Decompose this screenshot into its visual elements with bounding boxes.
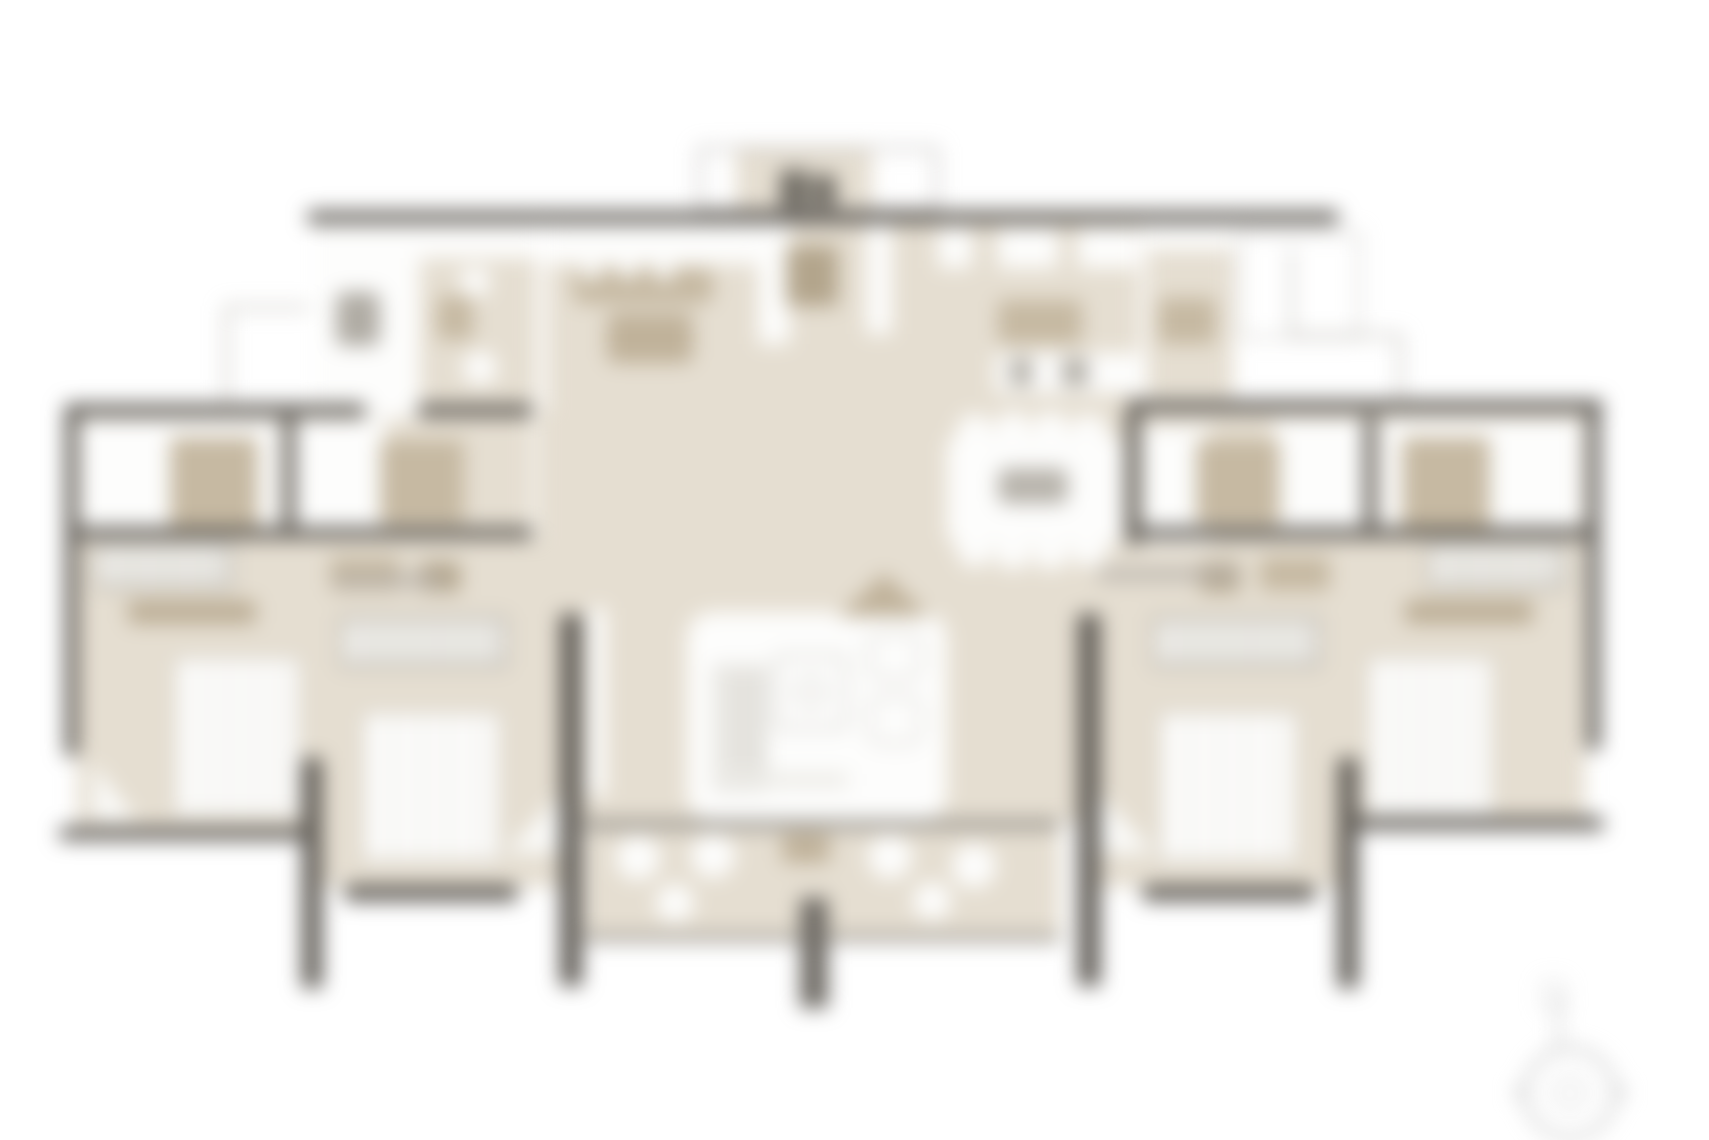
- closet-far-left-stripe: [176, 550, 179, 588]
- vestibule-cabinet: [786, 246, 838, 306]
- closet-inner-right-stripe: [1302, 624, 1305, 666]
- blurred-floor-plan: [0, 0, 1709, 1140]
- wall-inner-left-sep: [302, 758, 322, 988]
- bed-far-right-stripe: [1445, 663, 1448, 815]
- kitchen-window-1: [938, 228, 972, 268]
- north-compass-hub-icon: [1553, 1076, 1587, 1110]
- dining-chair-4: [1071, 414, 1107, 450]
- floor-plan-screenshot: [0, 0, 1709, 1140]
- closet-inner-right-stripe: [1219, 624, 1222, 666]
- sofa-chaise: [716, 772, 850, 788]
- wc-toilet: [463, 351, 497, 385]
- wall-left-mid: [77, 527, 532, 539]
- closet-far-left-stripe: [118, 550, 121, 588]
- closet-far-left-stripe: [157, 550, 160, 588]
- sofa-chaise-stripe: [820, 776, 823, 784]
- sofa-chaise-stripe: [731, 776, 734, 784]
- wall-top-main: [308, 211, 1338, 224]
- closet-far-right-stripe: [1490, 550, 1493, 588]
- north-compass-flag-icon: [1542, 981, 1564, 1009]
- counter-dot-2: [619, 261, 637, 279]
- bed-far-left-stripe: [202, 663, 205, 815]
- closet-far-right-stripe: [1548, 550, 1551, 588]
- bed-far-right-stripe: [1470, 663, 1473, 815]
- right-room-b: [1274, 420, 1364, 534]
- wall-left-wing-top-b: [418, 404, 532, 417]
- wall-inner-right-bottom: [1143, 885, 1315, 901]
- wc-cabinet: [437, 296, 473, 340]
- closet-far-right-stripe: [1470, 550, 1473, 588]
- closet-inner-left-stripe: [385, 624, 388, 666]
- wall-far-right-bottom: [1355, 817, 1603, 830]
- sofa-stripe: [742, 672, 745, 788]
- corridor-gap-right: [866, 334, 892, 412]
- counter-dot-1: [583, 263, 601, 281]
- bed-inner-left-stripe: [392, 718, 395, 860]
- dining-chair-5: [957, 531, 993, 567]
- terrace-table: [782, 833, 830, 863]
- wardrobe-left-a: [170, 437, 258, 529]
- bed-inner-left-stripe: [420, 718, 423, 860]
- terrace-seat-2: [691, 834, 735, 878]
- wall-dining-vert: [1126, 410, 1140, 544]
- closet-far-left-stripe: [215, 550, 218, 588]
- bed-far-left: [175, 657, 300, 817]
- closet-inner-right-stripe: [1281, 624, 1284, 666]
- wall-terrace-right: [1078, 614, 1100, 986]
- corridor-gap-left: [758, 344, 790, 410]
- wall-right-divider: [1364, 417, 1376, 531]
- sofa-chaise-stripe: [805, 776, 808, 784]
- closet-inner-right-stripe: [1240, 624, 1243, 666]
- wardrobe-right-b: [1196, 440, 1280, 524]
- bed-inner-right-stripe: [1217, 718, 1220, 860]
- kitchen-counter-mark-1: [1010, 358, 1032, 386]
- bed-far-right-stripe: [1420, 663, 1423, 815]
- bed-far-left-stripe: [252, 663, 255, 815]
- wall-gap-left-wing: [365, 404, 418, 418]
- terrace-pillar: [800, 898, 828, 1008]
- terrace-seat-4: [868, 835, 912, 879]
- wall-left-divider: [283, 417, 295, 531]
- family-table: [607, 313, 693, 363]
- bed-inner-left: [363, 712, 500, 862]
- patio-box: [1238, 232, 1360, 338]
- family-window-band: [547, 226, 758, 264]
- closet-inner-left-stripe: [468, 624, 471, 666]
- upper-left-window-band: [315, 224, 537, 258]
- kitchen-window-3: [1078, 228, 1138, 268]
- corridor-strip-right: [866, 224, 892, 334]
- kitchen-counter-mark-2: [1062, 358, 1088, 386]
- bed-far-right: [1368, 657, 1493, 817]
- closet-far-left: [95, 543, 232, 589]
- utility-cabinet: [1158, 298, 1216, 344]
- bed-far-right-stripe: [1395, 663, 1398, 815]
- closet-far-right-stripe: [1509, 550, 1512, 588]
- wall-right-outer: [1587, 400, 1600, 750]
- bed-inner-left-stripe: [447, 718, 450, 860]
- closet-inner-right-stripe: [1177, 624, 1180, 666]
- wall-inner-right-sep: [1338, 758, 1358, 988]
- entry-door-mark-2: [812, 175, 836, 207]
- bed-inner-right-stripe: [1189, 718, 1192, 860]
- entry-door-mark-1: [780, 170, 808, 208]
- outline-left-v: [225, 306, 228, 406]
- dining-chair-2: [995, 411, 1031, 447]
- terrace-seat-1: [616, 836, 660, 880]
- closet-far-right: [1428, 543, 1565, 589]
- sofa-stripe: [755, 672, 758, 788]
- closet-far-left-stripe: [196, 550, 199, 588]
- terrace-seat-3: [656, 884, 694, 922]
- closet-inner-right: [1153, 617, 1320, 667]
- left-room-b: [296, 420, 386, 534]
- bed-far-left-stripe: [277, 663, 280, 815]
- closet-inner-left-stripe: [447, 624, 450, 666]
- closet-inner-right-stripe: [1198, 624, 1201, 666]
- bed-inner-right-stripe: [1244, 718, 1247, 860]
- dining-plates: [998, 468, 1068, 504]
- rug-left-strip: [588, 608, 606, 796]
- closet-inner-left: [340, 617, 507, 667]
- closet-inner-right-stripe: [1260, 624, 1263, 666]
- wall-right-mid: [1128, 527, 1587, 539]
- sofa-chaise-stripe: [790, 776, 793, 784]
- bed-inner-right-stripe: [1272, 718, 1275, 860]
- bed-far-left-stripe: [227, 663, 230, 815]
- terrace-seat-5: [952, 844, 996, 888]
- north-compass-tick-left-icon: [1515, 1086, 1528, 1099]
- sofa-chaise-stripe: [776, 776, 779, 784]
- coffee-table-bowl: [796, 677, 826, 707]
- dining-chair-3: [1033, 411, 1069, 447]
- room-label-right: [1097, 568, 1239, 581]
- dining-chair-1: [957, 414, 993, 450]
- wall-terrace-left: [560, 614, 582, 986]
- closet-inner-left-stripe: [427, 624, 430, 666]
- wall-right-wing-top: [1128, 400, 1602, 413]
- dining-chair-8: [1071, 531, 1107, 567]
- bed-inner-right: [1160, 712, 1297, 862]
- armchair-2: [868, 696, 922, 744]
- dining-chair-6: [995, 534, 1031, 570]
- headboard-left: [128, 600, 256, 624]
- outline-right-v2: [1399, 334, 1402, 402]
- utility-top-gap: [1147, 224, 1233, 250]
- closet-inner-left-stripe: [364, 624, 367, 666]
- closet-far-left-stripe: [137, 550, 140, 588]
- room-label-left: [333, 574, 445, 587]
- sofa-chaise-stripe: [835, 776, 838, 784]
- outline-left-h: [225, 306, 310, 309]
- outline-right-v1: [1290, 248, 1293, 336]
- wall-left-outer: [65, 404, 78, 756]
- wall-left-wing-top-a: [70, 404, 365, 417]
- sofa-stripe: [729, 672, 732, 788]
- wardrobe-left-b: [380, 440, 464, 524]
- closet-far-right-stripe: [1451, 550, 1454, 588]
- desk-inner-right: [1260, 557, 1330, 591]
- terrace-glass-line: [585, 820, 1060, 829]
- bed-inner-left-stripe: [475, 718, 478, 860]
- wc-sink: [460, 267, 490, 297]
- sofa-chaise-stripe: [761, 776, 764, 784]
- armchair-1: [868, 633, 922, 679]
- wall-inner-left-bottom: [345, 885, 517, 901]
- wardrobe-right-a: [1402, 437, 1490, 529]
- closet-inner-left-stripe: [489, 624, 492, 666]
- kitchen-island: [998, 300, 1082, 344]
- closet-far-right-stripe: [1529, 550, 1532, 588]
- outline-right-h: [1290, 334, 1402, 337]
- dining-chair-7: [1033, 534, 1069, 570]
- counter-dot-3: [655, 263, 673, 281]
- wall-far-left-bottom: [60, 827, 305, 840]
- north-compass-tick-right-icon: [1612, 1086, 1625, 1099]
- kitchen-window-2: [998, 228, 1058, 268]
- headboard-right: [1405, 600, 1533, 624]
- closet-inner-left-stripe: [406, 624, 409, 666]
- terrace-seat-6: [913, 882, 951, 920]
- wc-fixture: [336, 292, 380, 346]
- sofa-chaise-stripe: [746, 776, 749, 784]
